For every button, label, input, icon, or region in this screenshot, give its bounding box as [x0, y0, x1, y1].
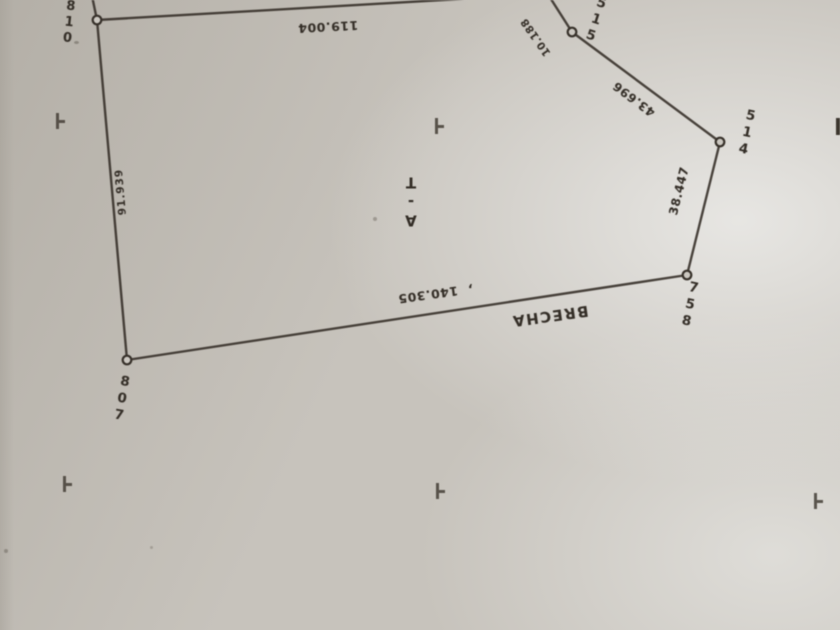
vertex-circle-515	[568, 28, 577, 37]
dust-speck	[373, 217, 377, 221]
vertex-circle-514	[716, 138, 725, 147]
stray-ink-mark: ,	[467, 283, 472, 297]
distance-label-119-004: 119.004	[297, 18, 358, 36]
parcel-label: A-T	[402, 173, 420, 230]
boundary-line-515-north-stub	[549, 0, 572, 32]
boundary-line-810-top	[97, 0, 478, 20]
vertex-circle-807	[123, 356, 132, 365]
clipped-grid-mark	[836, 118, 840, 135]
boundary-line-514-758	[687, 142, 720, 275]
dust-speck	[74, 41, 79, 44]
dust-speck	[4, 549, 8, 553]
boundary-line-758-807-brecha	[127, 275, 687, 360]
boundary-line-515-514	[572, 32, 720, 142]
scanned-survey-plat: 810 515 514 758 807 119.004 10.188 43.69…	[0, 0, 840, 630]
vertex-circle-810	[93, 16, 102, 25]
dust-speck	[150, 546, 153, 549]
parcel-boundary-drawing	[0, 0, 840, 630]
